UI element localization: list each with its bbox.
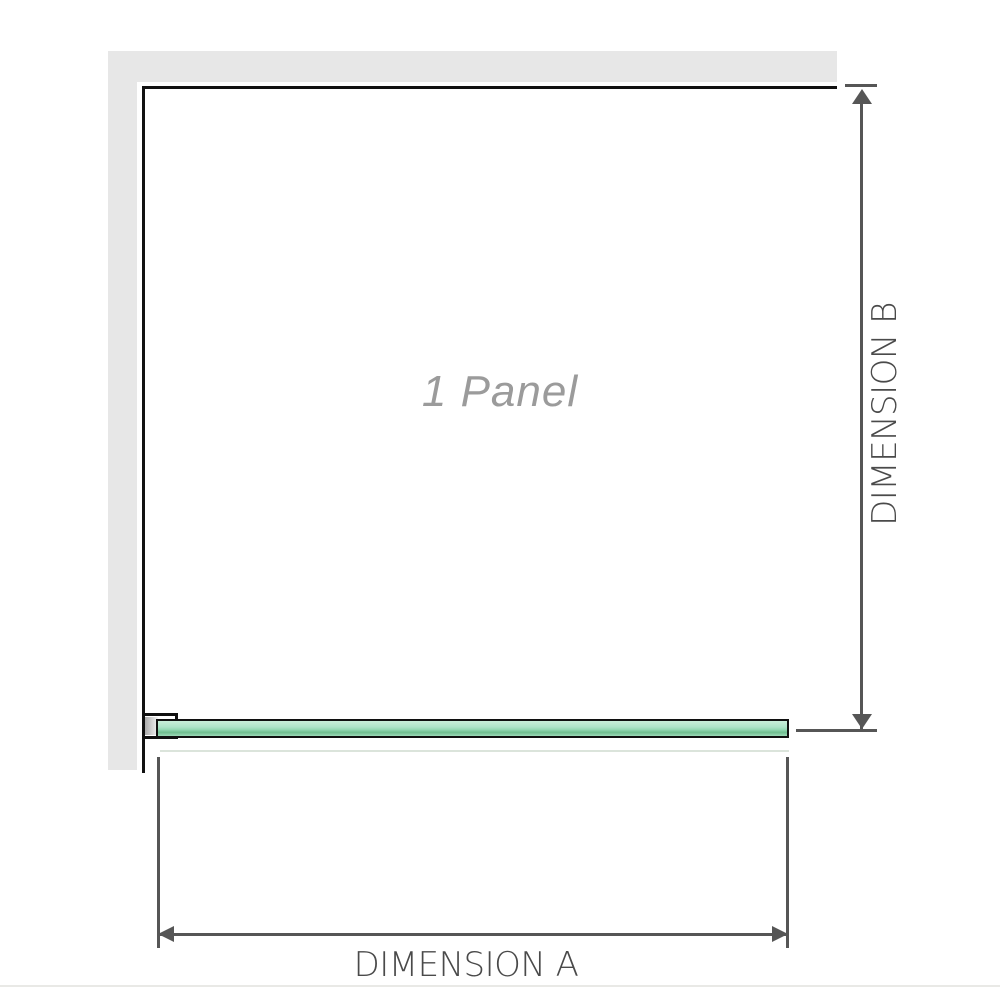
- wall-top-edge-line: [142, 86, 837, 89]
- dimension-a-left-extension-line: [157, 757, 160, 948]
- arrow-down-icon: [852, 714, 872, 729]
- dimension-a-line: [158, 933, 788, 936]
- dimension-a-right-extension-line: [786, 757, 789, 948]
- dimension-b-label: DIMENSION B: [865, 302, 905, 526]
- wall-left-edge-line: [142, 86, 145, 773]
- panel-count-label: 1 Panel: [422, 367, 578, 417]
- arrow-right-icon: [772, 926, 788, 942]
- wall-top: [108, 51, 837, 82]
- dimension-b-top-tick: [845, 84, 877, 87]
- dimension-a-label: DIMENSION A: [354, 945, 579, 985]
- dimension-b-line: [860, 92, 863, 729]
- glass-shadow-line: [160, 750, 789, 752]
- wall-left: [108, 51, 137, 770]
- footer-rule: [0, 985, 1000, 987]
- arrow-left-icon: [158, 926, 174, 942]
- dimension-b-bottom-tick: [796, 729, 877, 732]
- panel-dimension-diagram: 1 Panel DIMENSION B DIMENSION A: [0, 0, 1000, 1000]
- glass-panel: [156, 719, 789, 738]
- arrow-up-icon: [852, 89, 872, 104]
